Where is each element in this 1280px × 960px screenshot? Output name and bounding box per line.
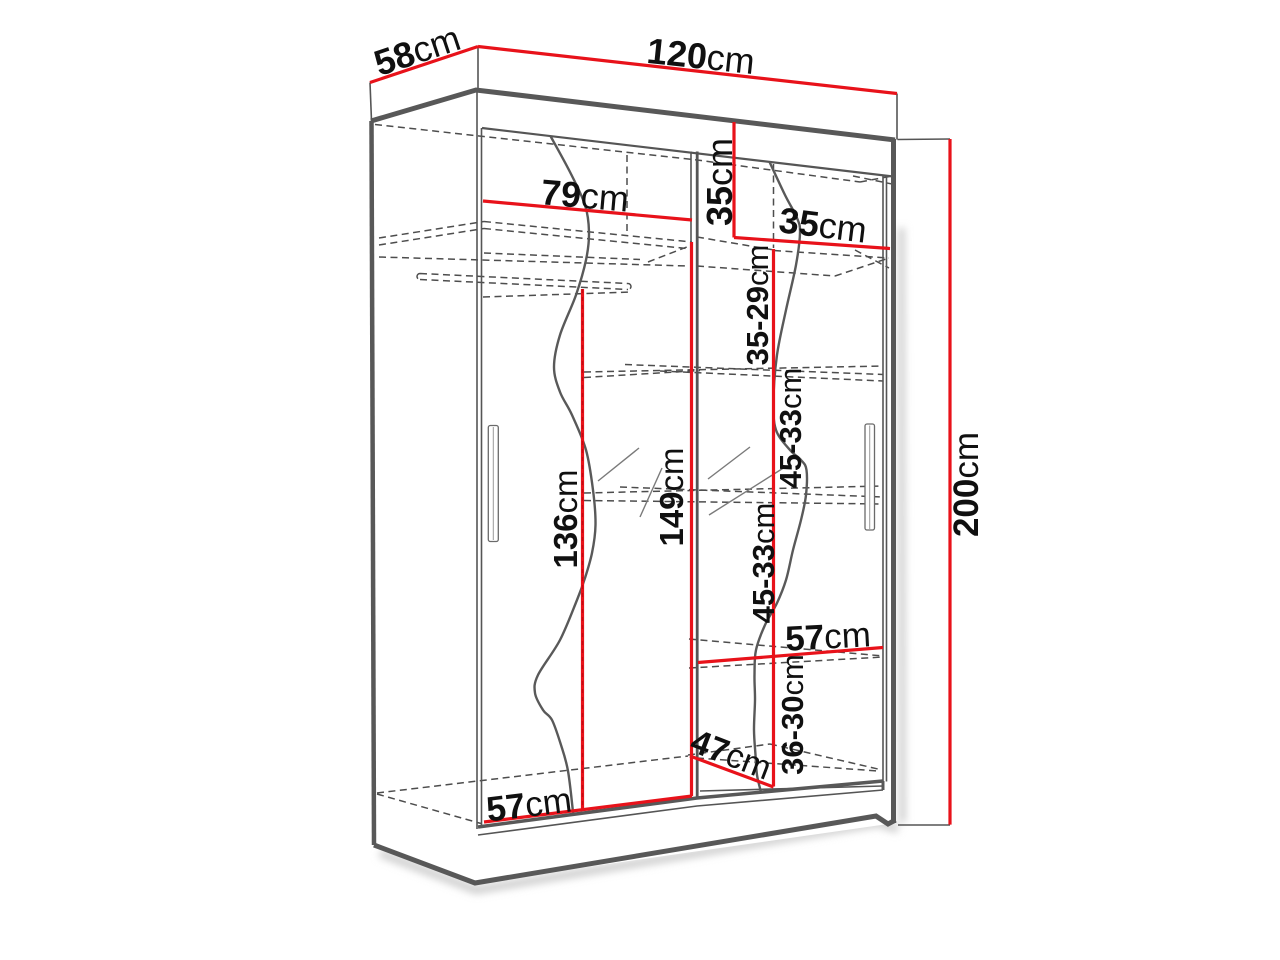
svg-text:45-33cm: 45-33cm: [746, 503, 781, 624]
svg-text:45-33cm: 45-33cm: [773, 368, 808, 489]
svg-text:35-29cm: 35-29cm: [740, 245, 775, 366]
svg-text:200cm: 200cm: [947, 432, 986, 537]
svg-text:79cm: 79cm: [539, 171, 630, 220]
svg-text:57cm: 57cm: [784, 615, 872, 658]
svg-text:149cm: 149cm: [653, 447, 690, 546]
svg-text:36-30cm: 36-30cm: [775, 654, 810, 775]
svg-text:136cm: 136cm: [547, 469, 584, 568]
svg-text:35cm: 35cm: [699, 138, 740, 226]
